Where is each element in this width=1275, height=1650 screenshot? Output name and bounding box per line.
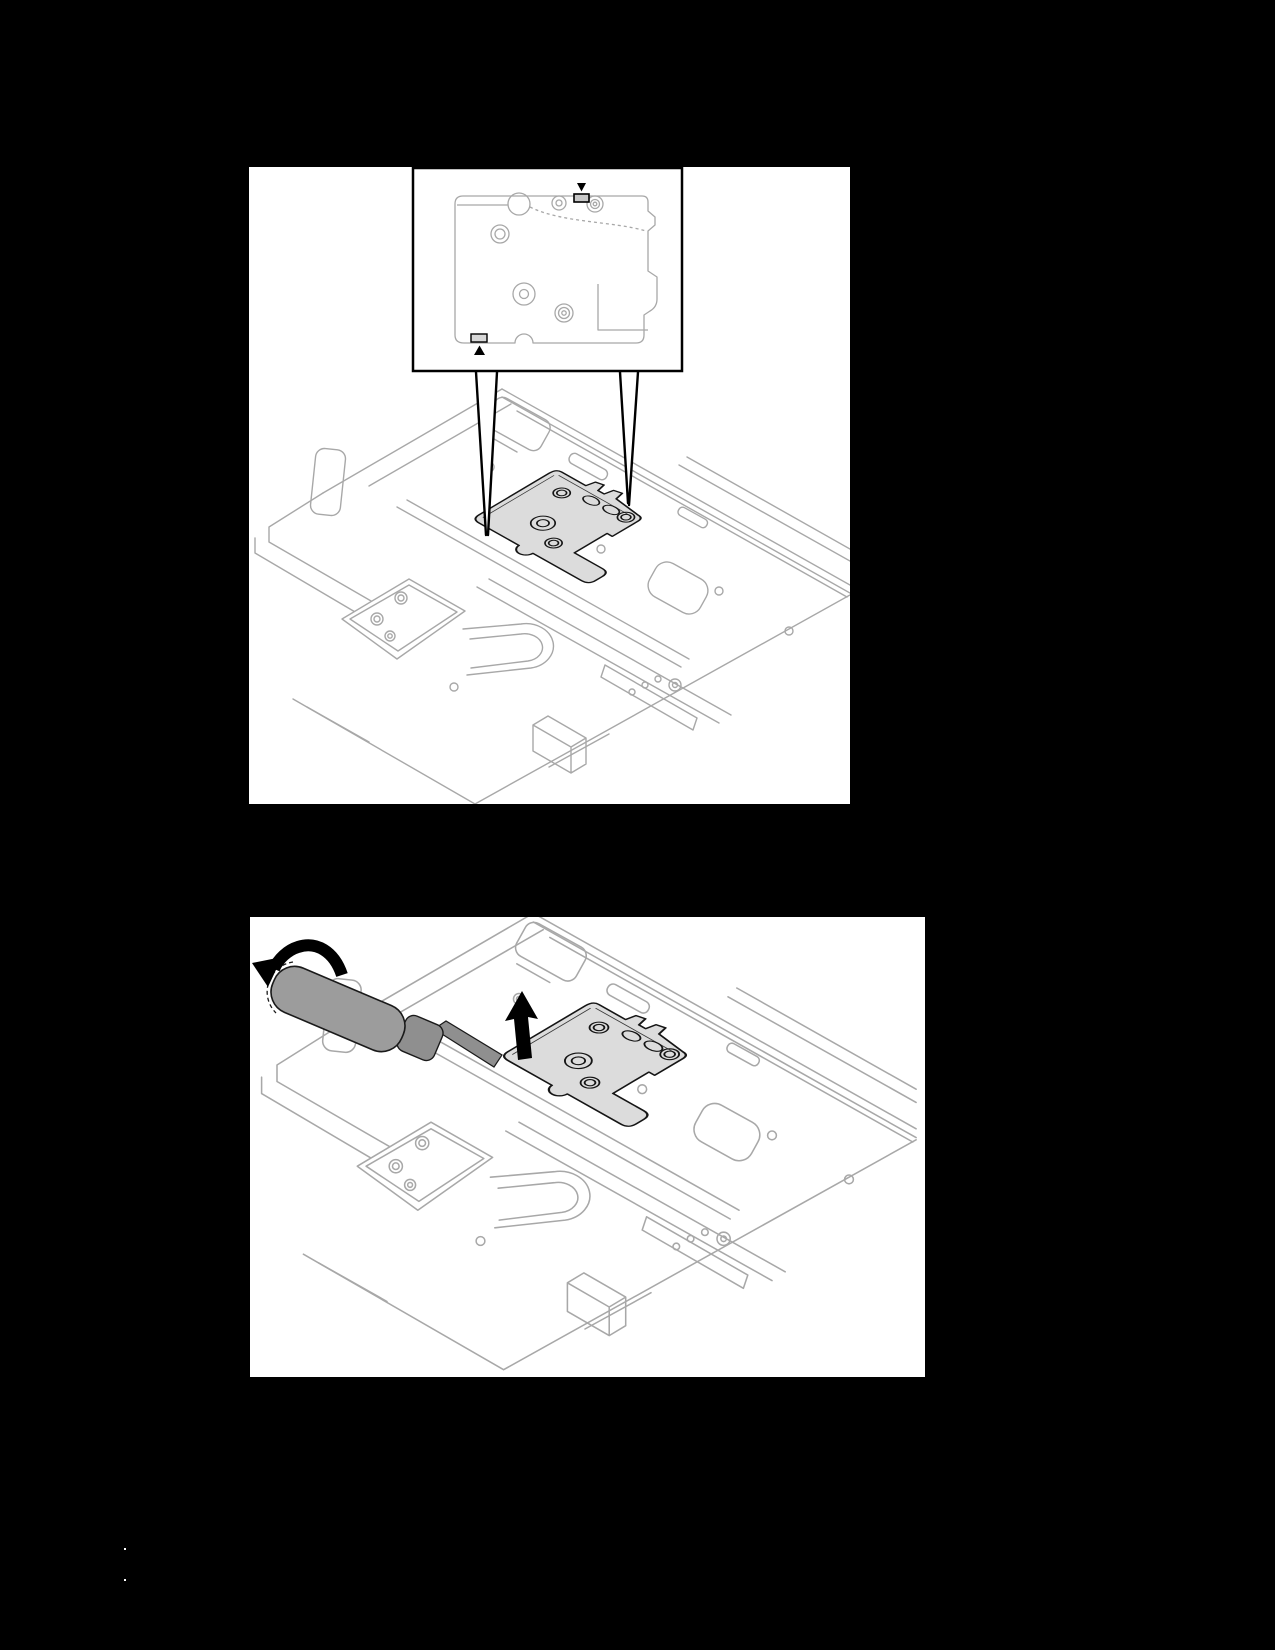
figure-pry-plate — [250, 917, 925, 1377]
node-tray-illustration — [255, 389, 850, 804]
pad-strip-top — [574, 194, 589, 202]
figure-pad-locations — [249, 167, 850, 804]
stray-dot — [124, 1548, 126, 1550]
node-tray-illustration — [262, 917, 917, 1370]
leader-right — [620, 372, 638, 505]
manual-page — [0, 0, 1275, 1650]
figure-top-canvas — [249, 167, 850, 804]
stray-dot — [124, 1579, 126, 1581]
pad-strip-bottom — [471, 334, 487, 342]
callout-detail-box — [413, 168, 682, 371]
figure-bottom-canvas — [250, 917, 925, 1377]
